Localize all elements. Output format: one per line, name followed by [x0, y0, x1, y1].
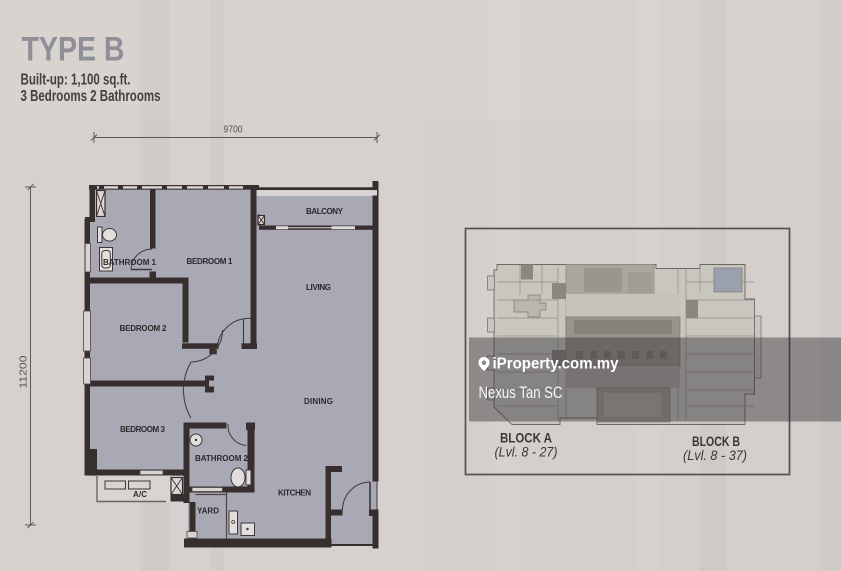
- svg-text:BEDROOM 2: BEDROOM 2: [120, 324, 168, 333]
- svg-text:DINING: DINING: [304, 397, 333, 406]
- svg-text:BLOCK A: BLOCK A: [500, 431, 552, 446]
- svg-text:(Lvl. 8 - 37): (Lvl. 8 - 37): [683, 448, 747, 463]
- svg-text:BLOCK B: BLOCK B: [692, 434, 740, 449]
- svg-text:KITCHEN: KITCHEN: [278, 489, 311, 498]
- svg-text:A/C: A/C: [133, 490, 147, 499]
- svg-text:Built-up: 1,100 sq.ft.: Built-up: 1,100 sq.ft.: [21, 72, 131, 89]
- svg-text:BEDROOM 3: BEDROOM 3: [120, 425, 166, 434]
- svg-text:Nexus Tan SC: Nexus Tan SC: [479, 384, 563, 402]
- svg-text:BATHROOM 2: BATHROOM 2: [195, 454, 249, 463]
- svg-text:LIVING: LIVING: [306, 283, 331, 292]
- svg-text:iProperty.com.my: iProperty.com.my: [493, 356, 619, 373]
- svg-text:9700: 9700: [224, 124, 243, 136]
- svg-text:(Lvl. 8 - 27): (Lvl. 8 - 27): [495, 445, 558, 460]
- svg-text:BEDROOM 1: BEDROOM 1: [187, 257, 234, 266]
- svg-text:BATHROOM 1: BATHROOM 1: [103, 258, 157, 267]
- svg-text:3 Bedrooms 2 Bathrooms: 3 Bedrooms 2 Bathrooms: [21, 88, 161, 105]
- svg-text:YARD: YARD: [197, 507, 219, 516]
- svg-text:11200: 11200: [18, 355, 30, 388]
- svg-text:BALCONY: BALCONY: [306, 207, 344, 216]
- svg-text:TYPE B: TYPE B: [22, 31, 125, 69]
